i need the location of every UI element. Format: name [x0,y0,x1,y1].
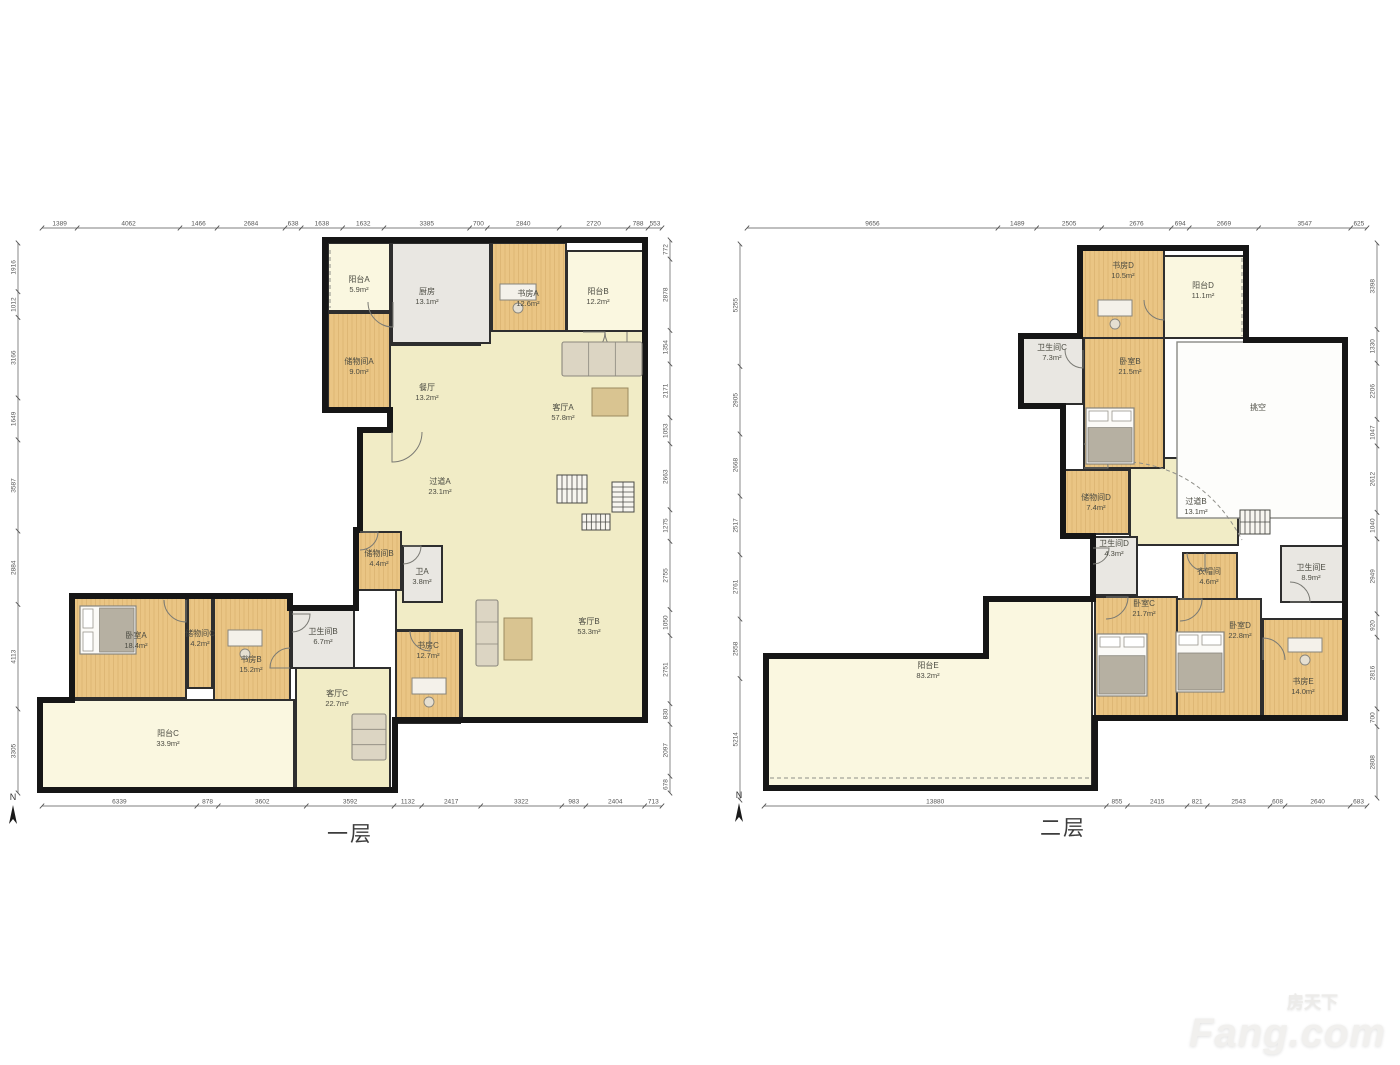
pillow-icon [1124,637,1144,647]
dimension-value: 2543 [1231,798,1246,805]
room-label: 衣帽间 [1197,566,1221,576]
dimension-value: 4113 [10,649,17,663]
room-area-label: 22.7m² [325,699,349,708]
pillow-icon [1112,411,1131,421]
chair-icon [424,697,434,707]
room-area-label: 15.2m² [239,665,263,674]
chair-icon [1110,319,1120,329]
dimension-value: 2517 [732,518,739,533]
room-label: 卧室D [1229,620,1251,630]
room-label: 卧室C [1133,598,1155,608]
dimension-value: 9656 [865,220,880,227]
dimension-value: 3166 [10,350,17,365]
room-label: 厨房 [419,286,435,296]
dimension-value: 3602 [255,798,270,805]
dimension-value: 5255 [732,298,739,313]
dimension-value: 2720 [586,220,601,227]
room-label: 储物间D [1081,492,1111,502]
room-label: 阳台D [1192,280,1214,290]
room-area-label: 13.1m² [415,297,439,306]
desk-icon [1098,300,1132,316]
room-area-label: 4.6m² [1199,577,1219,586]
room-label: 卫A [415,567,429,576]
dimension-value: 1916 [10,260,17,275]
room-f2-shufang-e [1263,619,1343,717]
room-area-label: 12.7m² [416,651,440,660]
pillow-icon [1100,637,1120,647]
dimension-value: 830 [662,708,669,719]
dimension-value: 3385 [420,220,435,227]
dimension-value: 608 [1272,798,1283,805]
dimension-value: 2663 [662,469,669,484]
dimension-value: 2905 [732,393,739,408]
dimension-value: 2640 [1310,798,1325,805]
room-area-label: 13.1m² [1184,507,1208,516]
blanket-icon [1088,428,1132,462]
dimension-value: 3587 [10,478,17,493]
desk-icon [412,678,446,694]
dimension-value: 1389 [52,220,67,227]
dimension-value: 1330 [1369,339,1376,354]
room-label: 书房B [240,654,261,664]
dimension-value: 2840 [516,220,531,227]
dimension-value: 3305 [10,743,17,758]
room-label: 阳台A [348,274,370,284]
room-label: 阳台C [157,728,179,738]
pillow-icon [83,632,93,651]
dimension-value: 2558 [732,641,739,656]
dimension-value: 5214 [732,732,739,747]
room-label: 客厅C [326,688,348,698]
room-f2-tiaokong [1177,342,1343,518]
dimension-value: 6339 [112,798,127,805]
dimension-value: 2808 [1369,755,1376,770]
dimension-value: 553 [650,220,661,227]
plan-svg: 阳台A5.9m²厨房13.1m²书房A12.6m²阳台B12.2m²储物间A9.… [0,0,1400,1065]
room-area-label: 4.4m² [369,559,389,568]
dimension-value: 13880 [926,798,944,805]
dimension-value: 1132 [401,798,415,805]
dimension-value: 855 [1112,798,1123,805]
dimension-value: 878 [202,798,213,805]
dimension-value: 983 [568,798,579,805]
dimension-value: 821 [1192,798,1203,805]
dimension-value: 2816 [1369,665,1376,680]
dimension-value: 2668 [732,457,739,472]
dimension-value: 1275 [662,518,669,533]
compass-arrow-icon [735,803,743,822]
sofa-icon [562,342,642,376]
floor-title: 二层 [1040,817,1086,840]
dimension-value: 625 [1353,220,1364,227]
dimension-value: 1012 [10,297,17,312]
room-label: 卫生间E [1296,562,1325,572]
room-label: 储物间B [364,548,393,558]
desk-icon [228,630,262,646]
room-area-label: 23.1m² [428,487,452,496]
dimension-value: 920 [1369,620,1376,631]
table-icon [592,388,628,416]
room-label: 储物间A [344,356,374,366]
room-label: 客厅B [578,616,599,626]
room-area-label: 4.3m² [1104,549,1124,558]
room-area-label: 6.7m² [313,637,333,646]
dimension-value: 2884 [10,560,17,575]
dimension-value: 2761 [732,579,739,594]
dimension-value: 3322 [514,798,529,805]
room-area-label: 18.4m² [124,641,148,650]
dimension-value: 1638 [315,220,330,227]
room-area-label: 8.9m² [1301,573,1321,582]
dimension-value: 2206 [1369,384,1376,399]
room-label: 卫生间D [1099,538,1129,548]
room-area-label: 21.5m² [1118,367,1142,376]
compass-arrow-icon [9,805,17,824]
room-area-label: 22.8m² [1228,631,1252,640]
dimension-value: 700 [1369,712,1376,723]
dimension-value: 2171 [662,383,669,398]
room-area-label: 21.7m² [1132,609,1156,618]
dimension-value: 694 [1175,220,1186,227]
room-label: 卧室B [1119,356,1140,366]
dimension-value: 788 [633,220,644,227]
dimension-value: 700 [473,220,484,227]
room-label: 书房C [417,640,439,650]
room-area-label: 57.8m² [551,413,575,422]
blanket-icon [1178,653,1222,690]
room-area-label: 10.5m² [1111,271,1135,280]
sofa-icon [352,714,386,760]
room-area-label: 11.1m² [1192,291,1215,300]
dimension-value: 2949 [1369,569,1376,584]
dimension-value: 2505 [1062,220,1077,227]
room-f2-yangtai-e [766,600,1092,786]
room-area-label: 12.6m² [516,299,540,308]
room-label: 客厅A [552,402,574,412]
dimension-value: 772 [662,244,669,255]
dimension-value: 1047 [1369,425,1376,440]
room-f2-chuwujian-d [1063,470,1129,534]
dimension-value: 1354 [662,340,669,355]
dimension-value: 1050 [662,615,669,630]
room-area-label: 13.2m² [415,393,439,402]
room-label: 书房D [1112,260,1134,270]
room-label: 储物间C [185,628,215,638]
room-label: 过道B [1185,496,1206,506]
pillow-icon [83,609,93,628]
room-f1-chufang [392,243,490,343]
floor-plan-image: 阳台A5.9m²厨房13.1m²书房A12.6m²阳台B12.2m²储物间A9.… [0,0,1400,1065]
dimension-value: 2612 [1369,472,1376,487]
dimension-value: 1466 [191,220,206,227]
room-label: 阳台E [917,660,938,670]
dimension-value: 4062 [121,220,136,227]
dimension-value: 638 [288,220,299,227]
room-area-label: 4.2m² [190,639,210,648]
dimension-value: 2878 [662,287,669,302]
dimension-value: 3592 [343,798,358,805]
sofa-icon [476,600,498,666]
dimension-value: 713 [648,798,659,805]
pillow-icon [1089,411,1108,421]
dimension-value: 2755 [662,568,669,583]
dimension-value: 2417 [444,798,459,805]
dimension-value: 3398 [1369,279,1376,294]
room-area-label: 14.0m² [1291,687,1315,696]
dimension-value: 678 [662,779,669,790]
dimension-value: 2684 [244,220,259,227]
room-f1-shufang-b [214,598,290,708]
dimension-value: 1489 [1010,220,1025,227]
room-area-label: 83.2m² [916,671,940,680]
compass-north-label: N [10,792,17,802]
room-area-label: 12.2m² [586,297,610,306]
table-icon [504,618,532,660]
room-area-label: 9.0m² [349,367,369,376]
dimension-value: 3547 [1297,220,1312,227]
dimension-value: 1040 [1369,518,1376,533]
dimension-value: 2669 [1217,220,1232,227]
room-area-label: 33.9m² [156,739,180,748]
compass-north-label: N [736,790,743,800]
desk-icon [1288,638,1322,652]
dimension-value: 1649 [10,411,17,426]
dimension-value: 2676 [1129,220,1144,227]
dimension-value: 2415 [1150,798,1165,805]
pillow-icon [1202,635,1221,645]
room-label: 书房A [517,288,539,298]
blanket-icon [1099,656,1145,694]
room-label: 卧室A [125,630,147,640]
dimension-value: 2404 [608,798,623,805]
room-label: 阳台B [587,286,608,296]
room-area-label: 3.8m² [412,577,432,586]
pillow-icon [1179,635,1198,645]
dimension-value: 2751 [662,662,669,677]
chair-icon [1300,655,1310,665]
dimension-value: 683 [1353,798,1364,805]
dimension-value: 1632 [356,220,371,227]
room-label: 餐厅 [419,383,435,392]
room-label: 卫生间C [1037,342,1067,352]
room-area-label: 7.3m² [1042,353,1062,362]
room-label: 过道A [429,476,451,486]
room-area-label: 7.4m² [1086,503,1106,512]
floor-title: 一层 [327,823,373,846]
room-area-label: 5.9m² [349,285,369,294]
room-label: 卫生间B [308,626,337,636]
dimension-value: 2097 [662,743,669,758]
room-label: 书房E [1292,676,1313,686]
room-label: 挑空 [1250,402,1266,412]
dimension-value: 1053 [662,423,669,438]
room-area-label: 53.3m² [577,627,601,636]
